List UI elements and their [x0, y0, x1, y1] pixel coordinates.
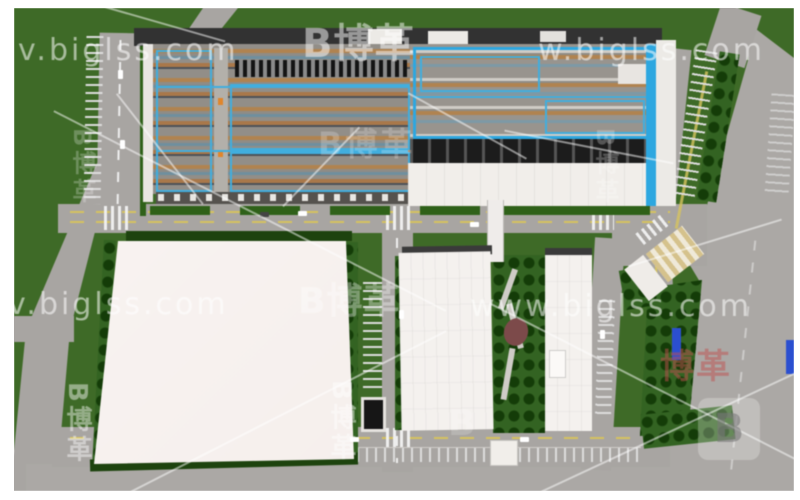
conveyor-line-blue	[415, 96, 648, 98]
watermark-badge-letter: B	[714, 406, 745, 452]
watermark-text-mid-right: www.biglss.com	[470, 292, 752, 322]
image-margin-top	[0, 0, 800, 8]
watermark-logo-vertical: B博革	[70, 128, 94, 206]
watermark-logo-faint-factory: B博革	[318, 128, 415, 160]
utility-structure-dark	[361, 397, 386, 432]
watermark-logo-badge: B	[698, 398, 760, 460]
image-margin-bottom	[0, 491, 800, 500]
conveyor-line-blue	[158, 86, 408, 88]
watermark-text-top-right: w.biglss.com	[538, 36, 765, 66]
crosswalk	[386, 428, 412, 448]
car	[298, 211, 307, 216]
factory-skylight	[428, 31, 468, 44]
crosswalk	[104, 206, 128, 230]
rooftop-unit	[549, 350, 566, 378]
watermark-logo-vertical: B博革	[64, 382, 90, 466]
car	[600, 330, 605, 339]
zone-outline	[420, 56, 540, 92]
factory-main-aisle	[214, 48, 228, 192]
factory-blue-edge	[646, 44, 656, 206]
watermark-logo-red: 博革	[660, 350, 732, 384]
watermark-text-top-left: v.biglss.com	[18, 36, 239, 66]
watermark-text-mid-left: v.biglss.com	[8, 290, 229, 320]
zone-outline	[156, 50, 212, 192]
watermark-logo-top-center: B博革	[302, 24, 416, 64]
office-building-1	[398, 251, 493, 431]
hedge-plot-top	[126, 231, 352, 241]
watermark-logo-mid: B博革	[298, 284, 400, 320]
watermark-letter-faint: B	[448, 406, 478, 442]
watermark-logo-vertical: B博革	[328, 380, 354, 464]
image-margin-left	[0, 0, 14, 500]
watermark-logo-vertical: B博革	[593, 128, 617, 206]
small-white-hut	[490, 440, 518, 466]
lane-marking-yellow	[70, 221, 670, 223]
image-margin-right	[794, 0, 800, 500]
hedge-segments-south-roof	[420, 206, 650, 215]
site-plan-render: v.biglss.com w.biglss.com B博革 v.biglss.c…	[0, 0, 800, 500]
sign-blue	[786, 340, 794, 374]
car	[470, 222, 479, 227]
site-plan-image: v.biglss.com w.biglss.com B博革 v.biglss.c…	[0, 0, 800, 500]
car	[520, 437, 529, 442]
aisle-agv-dot	[218, 98, 223, 105]
car	[118, 70, 123, 79]
